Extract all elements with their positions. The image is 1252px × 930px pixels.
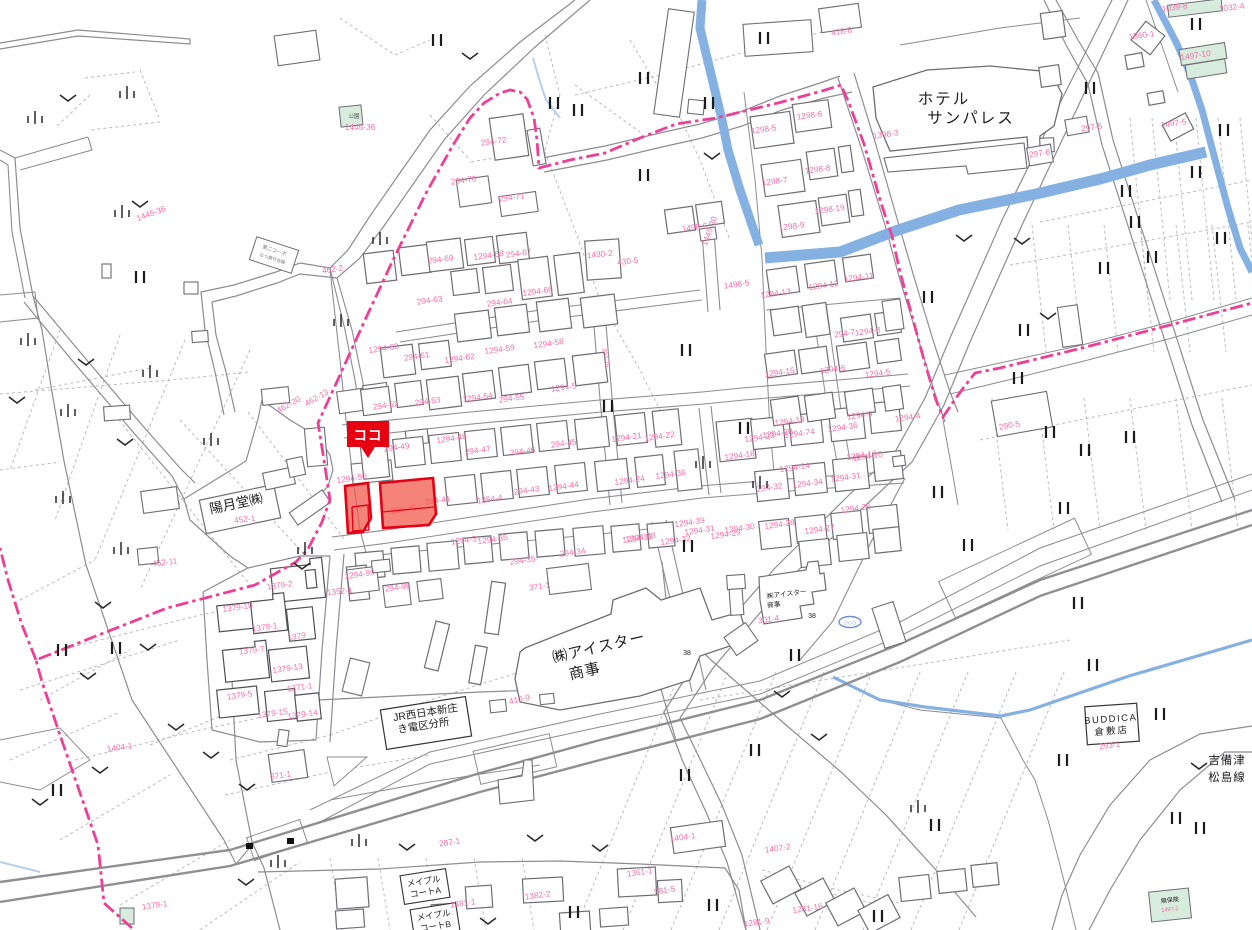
svg-text:公園: 公園 [348, 113, 360, 120]
svg-text:ココ: ココ [354, 428, 383, 443]
svg-text:吉備津: 吉備津 [1208, 753, 1246, 767]
svg-text:松島線: 松島線 [1208, 770, 1246, 784]
svg-text:サンパレス: サンパレス [927, 110, 1015, 127]
svg-text:38: 38 [683, 650, 691, 657]
svg-text:ホテル: ホテル [918, 91, 971, 108]
svg-text:倉敷店: 倉敷店 [1094, 724, 1129, 738]
svg-text:1445-36: 1445-36 [345, 122, 376, 132]
svg-text:○○○: ○○○ [844, 620, 857, 627]
svg-text:38: 38 [808, 613, 816, 620]
